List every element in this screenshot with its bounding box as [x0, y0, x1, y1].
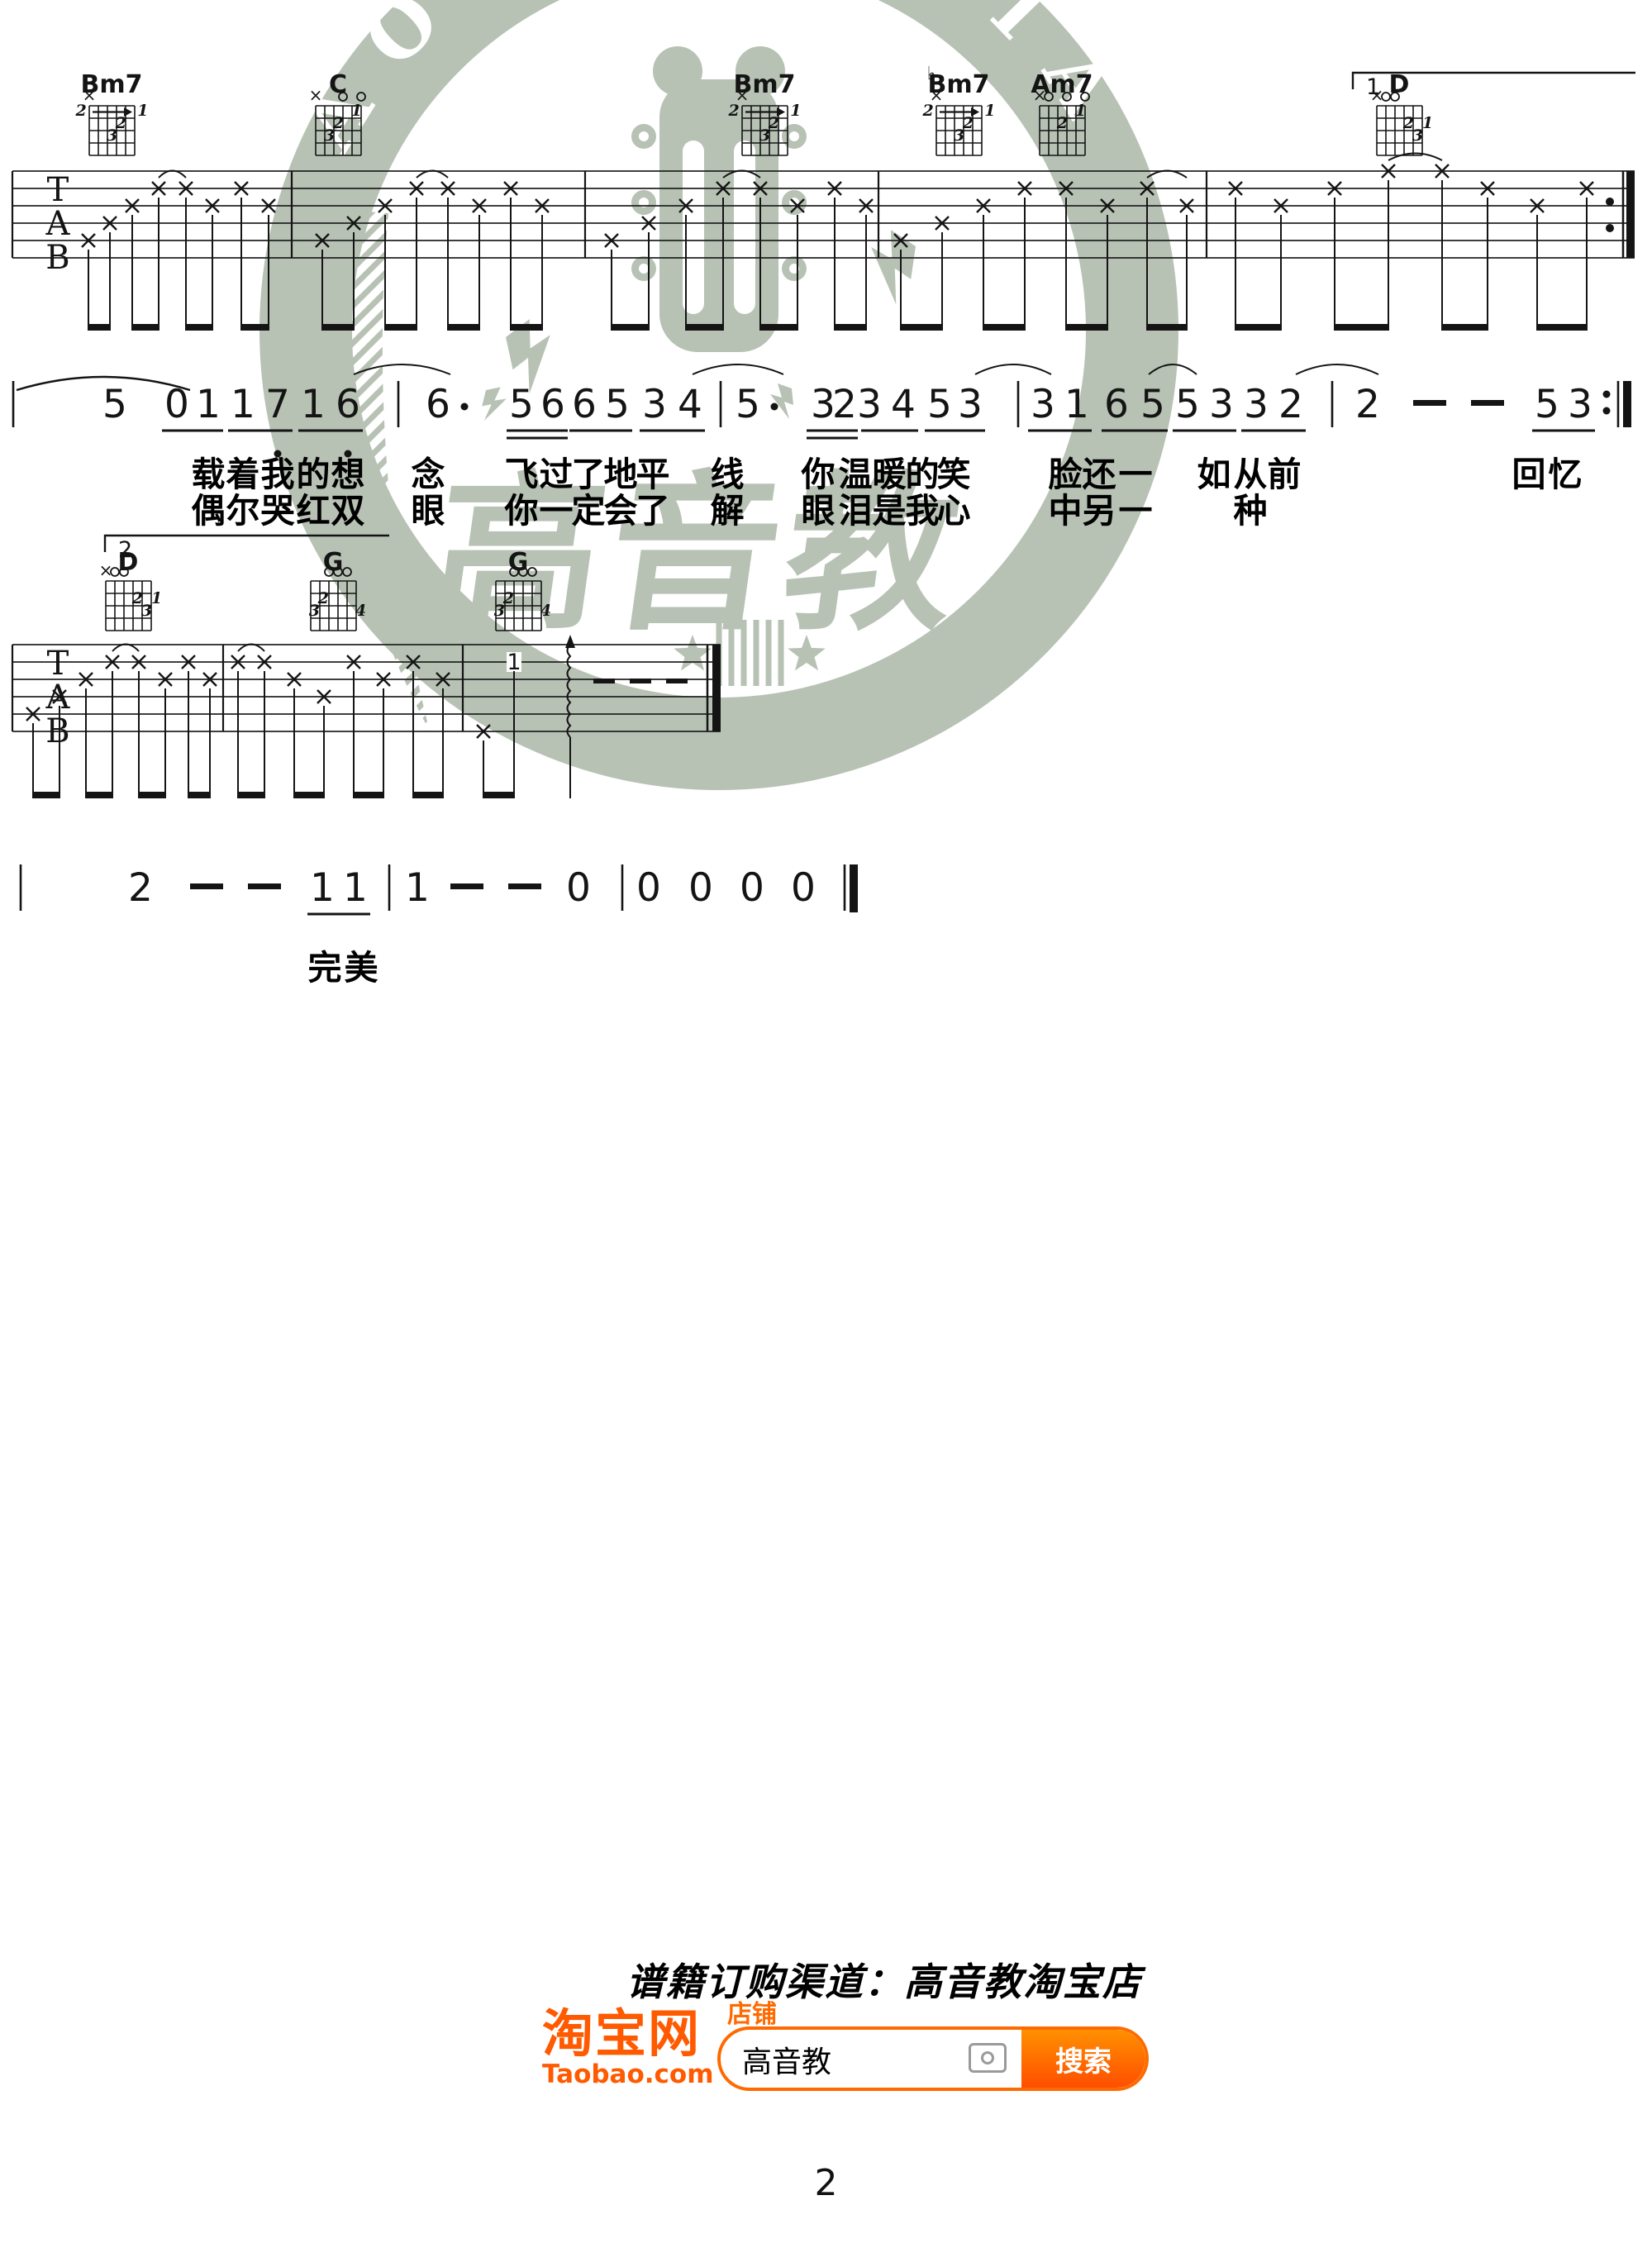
- tab-letter: B: [45, 712, 69, 750]
- lyric-char: 温: [839, 455, 873, 494]
- svg-text:3: 3: [309, 602, 320, 620]
- flat-sign: ♭: [927, 64, 935, 84]
- svg-text:3: 3: [494, 602, 505, 620]
- lyric-char: 飞: [505, 455, 539, 494]
- jianpu-note: 0: [636, 865, 661, 911]
- lyric-char: 双: [331, 491, 365, 531]
- tab-staff-2: TAB1: [12, 635, 721, 798]
- lyric-char: 忆: [1549, 455, 1583, 494]
- order-channel-title: 谱籍订购渠道：高音教淘宝店: [116, 1952, 1652, 2007]
- jianpu-note: 0: [566, 865, 591, 911]
- jianpu-note: 2: [1278, 382, 1303, 427]
- lyric-char: 念: [412, 455, 445, 494]
- lyric-char: 一: [1119, 455, 1153, 494]
- camera-icon[interactable]: [969, 2043, 1007, 2073]
- lyric-char: 了: [636, 491, 670, 531]
- jianpu-note: 4: [891, 382, 916, 427]
- svg-text:4: 4: [355, 602, 366, 620]
- lyric-char: 了: [572, 455, 606, 494]
- slur-arc: [693, 364, 783, 374]
- jianpu-note: 1: [1064, 382, 1089, 427]
- camera-lens: [981, 2051, 994, 2064]
- jianpu-note: 1: [343, 865, 368, 911]
- jianpu-note: 6: [336, 382, 360, 427]
- lyric-char: 暖: [873, 455, 907, 494]
- lyric-char: 从: [1234, 455, 1268, 494]
- jianpu-note: 5: [1535, 382, 1559, 427]
- jianpu-note: 1: [196, 382, 221, 427]
- lyric-char: 泪: [839, 491, 873, 531]
- taobao-logo-cn: 淘宝网: [542, 2008, 707, 2060]
- lyric-char: 定: [572, 491, 606, 531]
- lyrics-row: 载着我的想念飞过了地平线你温暖的笑脸还一如从前回忆: [192, 455, 1583, 494]
- jianpu-note: 3: [1031, 382, 1055, 427]
- lyric-char: 一: [540, 491, 574, 531]
- hold-dash: [593, 679, 615, 683]
- tie-arc: [1388, 154, 1442, 161]
- slur-arc: [1149, 364, 1197, 374]
- jianpu-note: 3: [958, 382, 983, 427]
- chord-label: C: [329, 70, 347, 99]
- lyric-char: 种: [1234, 491, 1268, 531]
- svg-text:1: 1: [1075, 102, 1086, 120]
- lyric-char: 着: [226, 455, 260, 494]
- taobao-logo-en: Taobao.com: [542, 2060, 707, 2090]
- svg-text:3: 3: [324, 126, 335, 145]
- page-number: 2: [0, 2162, 1652, 2204]
- svg-text:3: 3: [759, 126, 770, 145]
- lyric-char: 哭: [261, 491, 296, 531]
- lyric-char: 完: [308, 948, 342, 988]
- lyric-char: 如: [1197, 455, 1231, 494]
- svg-text:4: 4: [540, 602, 551, 620]
- jianpu-note: 2: [1355, 382, 1380, 427]
- svg-text:3: 3: [1412, 126, 1423, 145]
- taobao-search-bar[interactable]: 搜索: [717, 2026, 1149, 2091]
- lyric-char: 地: [604, 455, 638, 494]
- lyric-char: 你: [504, 491, 539, 531]
- lyrics-row: 完美: [308, 948, 378, 988]
- lyric-char: 前: [1268, 455, 1302, 494]
- svg-text:×: ×: [309, 85, 323, 105]
- svg-text:1: 1: [1422, 114, 1433, 132]
- lyric-char: 另: [1083, 491, 1116, 531]
- lyric-char: 过: [540, 455, 574, 494]
- jianpu-dash: [508, 883, 541, 889]
- tab-letter: A: [45, 205, 71, 243]
- svg-text:2: 2: [1056, 114, 1068, 132]
- lyric-char: 美: [345, 948, 378, 988]
- hold-dash: [666, 679, 688, 683]
- lyric-char: 解: [711, 491, 745, 531]
- chord-diagram: 234: [494, 568, 551, 631]
- jianpu-note: 5: [1175, 382, 1200, 427]
- svg-text:1: 1: [151, 589, 162, 607]
- svg-text:3: 3: [141, 602, 152, 620]
- lyric-char: 红: [297, 491, 331, 531]
- jianpu-note: 0: [740, 865, 764, 911]
- volta-bracket: 2: [105, 536, 389, 563]
- jianpu-note: 5: [927, 382, 952, 427]
- lyric-char: 平: [636, 455, 670, 494]
- search-button[interactable]: 搜索: [1021, 2030, 1145, 2088]
- volta-number: 1: [1366, 74, 1380, 100]
- jianpu-note: 3: [1209, 382, 1234, 427]
- svg-text:1: 1: [351, 102, 362, 120]
- shop-label: 店铺: [727, 1993, 777, 2030]
- jianpu-note: 3: [642, 382, 667, 427]
- jianpu-note: 1: [231, 382, 255, 427]
- lyric-char: 脸: [1049, 455, 1083, 494]
- jianpu-dash: [1471, 400, 1504, 406]
- lyric-char: 眼: [802, 491, 836, 531]
- volta-number: 2: [118, 537, 132, 563]
- notation-layer: Bm7×2123C×123Bm7×2123Bm7♭×2123Am7×12D×21…: [0, 0, 1652, 2243]
- lyrics-row: 偶尔哭红双眼你一定会了解眼泪是我心中另一种: [192, 491, 1268, 531]
- jianpu-line-2: 211100000完美: [21, 864, 858, 988]
- chord-diagram: 234: [309, 568, 366, 631]
- lyric-char: 是: [873, 491, 907, 531]
- jianpu-note: 5: [736, 382, 760, 427]
- lyric-char: 眼: [412, 491, 445, 531]
- lyric-char: 想: [331, 455, 365, 494]
- jianpu-dash: [1413, 400, 1446, 406]
- octave-dot: [461, 403, 469, 411]
- jianpu-dash: [450, 883, 483, 889]
- slur-arc: [1296, 364, 1378, 374]
- lyric-char: 偶: [192, 491, 226, 531]
- svg-text:1: 1: [790, 102, 801, 120]
- repeat-barline: [1623, 381, 1631, 427]
- lyric-char: 会: [604, 491, 638, 531]
- lyric-char: 载: [192, 455, 226, 494]
- jianpu-note: 3: [1244, 382, 1269, 427]
- jianpu-line-1: 50117166566534532345331655332253载着我的想念飞过…: [13, 364, 1631, 531]
- tab-letter: B: [45, 239, 69, 277]
- svg-text:1: 1: [984, 102, 995, 120]
- jianpu-dash: [190, 883, 223, 889]
- jianpu-note: 6: [572, 382, 597, 427]
- lyric-char: 你: [801, 455, 836, 494]
- jianpu-note: 4: [678, 382, 702, 427]
- svg-text:2: 2: [74, 102, 86, 120]
- jianpu-note: 0: [791, 865, 816, 911]
- jianpu-note: 1: [310, 865, 335, 911]
- sheet-music-page: GAO YIN JIAO高音教 Bm7×2123C×123Bm7×2123Bm7…: [0, 0, 1652, 2243]
- lyric-char: 一: [1119, 491, 1153, 531]
- jianpu-note: 3: [1568, 382, 1592, 427]
- lyric-char: 线: [711, 455, 745, 494]
- jianpu-note: 5: [605, 382, 630, 427]
- lyric-char: 我: [261, 455, 295, 494]
- lyric-char: 我: [906, 491, 940, 531]
- svg-text:1: 1: [137, 102, 148, 120]
- jianpu-note: 2: [832, 382, 857, 427]
- taobao-logo: 淘宝网 Taobao.com: [542, 2008, 707, 2090]
- lyric-char: 笑: [937, 455, 971, 494]
- lyric-char: 中: [1049, 491, 1083, 531]
- jianpu-note: 2: [128, 865, 153, 911]
- jianpu-note: 7: [265, 382, 290, 427]
- lyric-char: 尔: [226, 491, 260, 531]
- lyric-char: 还: [1083, 455, 1116, 494]
- chord-row-1: Bm7×2123C×123Bm7×2123Bm7♭×2123Am7×12D×21…: [74, 64, 1433, 155]
- svg-text:3: 3: [954, 126, 964, 145]
- jianpu-note: 6: [540, 382, 565, 427]
- jianpu-note: 1: [301, 382, 326, 427]
- tab-letter: T: [47, 645, 69, 683]
- hold-dash: [630, 679, 651, 683]
- svg-text:2: 2: [727, 102, 739, 120]
- svg-text:3: 3: [107, 126, 117, 145]
- chord-row-2: D×213G234G234: [99, 548, 552, 631]
- lyric-char: 的: [906, 455, 940, 494]
- jianpu-note: 5: [1140, 382, 1165, 427]
- octave-dot: [771, 403, 778, 411]
- jianpu-note: 5: [102, 382, 127, 427]
- jianpu-note: 3: [857, 382, 882, 427]
- tab-staff-1: TAB: [12, 154, 1635, 331]
- slur-arc: [354, 364, 450, 374]
- lyric-char: 的: [297, 455, 331, 494]
- arpeggio-squiggle: [568, 645, 571, 737]
- svg-text:2: 2: [921, 102, 933, 120]
- jianpu-note: 0: [688, 865, 713, 911]
- lyric-char: 心: [937, 491, 971, 531]
- jianpu-note: 6: [1104, 382, 1129, 427]
- jianpu-note: 5: [509, 382, 534, 427]
- tab-letter: T: [47, 171, 69, 209]
- final-barline: [850, 864, 858, 912]
- jianpu-note: 1: [405, 865, 430, 911]
- jianpu-note: 6: [426, 382, 450, 427]
- lyric-char: 回: [1512, 455, 1546, 494]
- jianpu-dash: [248, 883, 281, 889]
- slur-arc: [975, 364, 1051, 374]
